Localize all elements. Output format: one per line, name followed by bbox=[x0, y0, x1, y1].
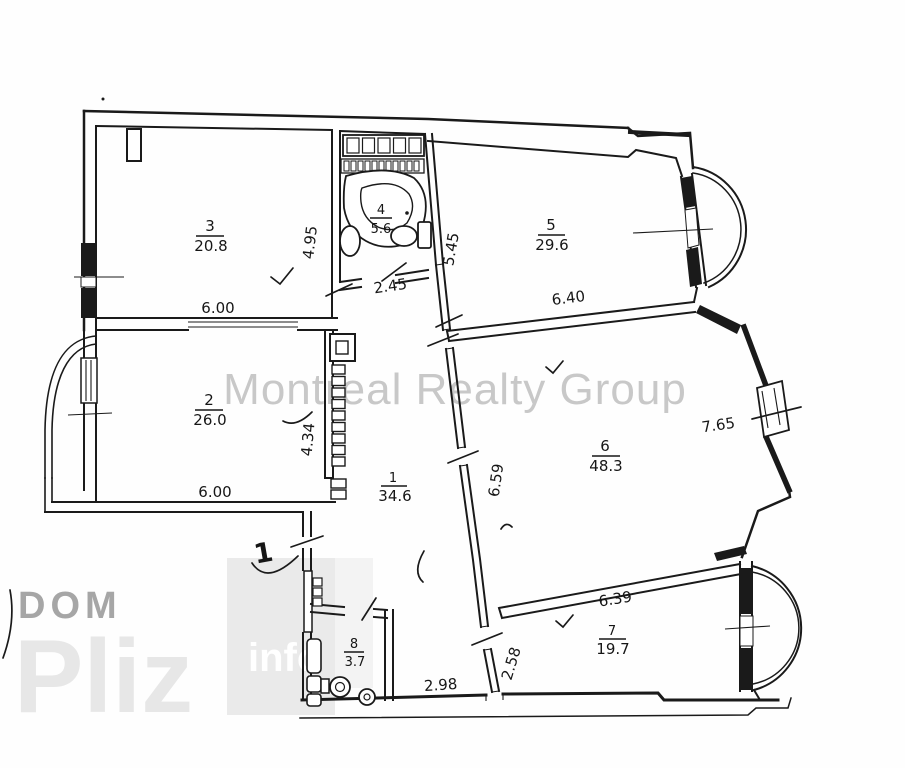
room1-number: 1 bbox=[389, 471, 397, 486]
wall-notch bbox=[127, 129, 141, 161]
room-label-6: 6 48.3 bbox=[589, 437, 622, 475]
room7-number: 7 bbox=[608, 624, 616, 639]
room7-area: 19.7 bbox=[596, 640, 629, 658]
bathroom-fixtures bbox=[340, 135, 431, 256]
room2-area: 26.0 bbox=[193, 411, 226, 429]
dim-bath-width: 2.45 bbox=[373, 275, 409, 297]
room-label-2: 2 26.0 bbox=[193, 391, 226, 429]
room3-area: 20.8 bbox=[194, 237, 227, 255]
room8-area: 3.7 bbox=[345, 655, 366, 670]
dim-room7-height: 2.58 bbox=[498, 645, 525, 682]
dim-room7-width: 6.39 bbox=[597, 588, 633, 611]
bay-window-room7 bbox=[725, 562, 801, 700]
room4-area: 5.6 bbox=[371, 222, 392, 237]
dim-room2-width: 6.00 bbox=[198, 483, 231, 501]
dim-room3-width: 6.00 bbox=[201, 299, 234, 317]
room4-number: 4 bbox=[377, 203, 385, 218]
room-label-3: 3 20.8 bbox=[194, 217, 227, 255]
dim-room2-height: 4.34 bbox=[298, 422, 319, 457]
door-tick bbox=[291, 536, 323, 547]
window-east bbox=[757, 381, 789, 437]
room-label-5: 5 29.6 bbox=[535, 216, 568, 254]
window-room2 bbox=[81, 358, 97, 403]
dim-room6-height: 6.59 bbox=[485, 463, 507, 499]
shelf-icon bbox=[341, 135, 424, 173]
radiator-column-icon bbox=[331, 365, 346, 499]
room-label-7: 7 19.7 bbox=[596, 624, 629, 658]
pen-curl bbox=[501, 524, 512, 529]
dim-room3-height: 4.95 bbox=[299, 225, 321, 260]
room-label-1: 1 34.6 bbox=[378, 471, 411, 505]
sink-icon bbox=[340, 226, 360, 256]
wall-wedge bbox=[714, 546, 747, 561]
wall-wedge bbox=[696, 305, 741, 334]
floor-plan-scan: Montreal Realty Group DOM Pliz info bbox=[0, 0, 905, 768]
check-mark bbox=[556, 615, 573, 627]
watermark-layer: Montreal Realty Group DOM Pliz info bbox=[14, 365, 687, 735]
dim-room5-width: 6.40 bbox=[551, 287, 586, 309]
logo-pliz: Pliz bbox=[14, 619, 193, 735]
check-mark bbox=[271, 268, 293, 284]
drain-icon bbox=[359, 689, 375, 705]
door-leaf bbox=[304, 571, 312, 632]
scan-speck bbox=[102, 98, 105, 101]
room2-number: 2 bbox=[204, 391, 214, 409]
room1-area: 34.6 bbox=[378, 487, 411, 505]
room8-number: 8 bbox=[350, 637, 358, 652]
room5-area: 29.6 bbox=[535, 236, 568, 254]
room6-number: 6 bbox=[600, 437, 610, 455]
pen-curl bbox=[418, 551, 424, 582]
room6-area: 48.3 bbox=[589, 457, 622, 475]
handwritten-number: 1 bbox=[252, 537, 276, 571]
dim-room5-height: 5.45 bbox=[439, 231, 463, 267]
dim-hall-width: 2.98 bbox=[423, 675, 458, 695]
window-left-lower bbox=[81, 288, 96, 318]
bay-window-room5 bbox=[633, 167, 746, 302]
dim-room6-width: 7.65 bbox=[701, 414, 737, 436]
room3-number: 3 bbox=[205, 217, 215, 235]
floor-plan-svg: Montreal Realty Group DOM Pliz info bbox=[0, 0, 905, 768]
handwritten-slash bbox=[3, 590, 12, 658]
room5-number: 5 bbox=[546, 216, 556, 234]
window-left-upper bbox=[81, 243, 96, 276]
